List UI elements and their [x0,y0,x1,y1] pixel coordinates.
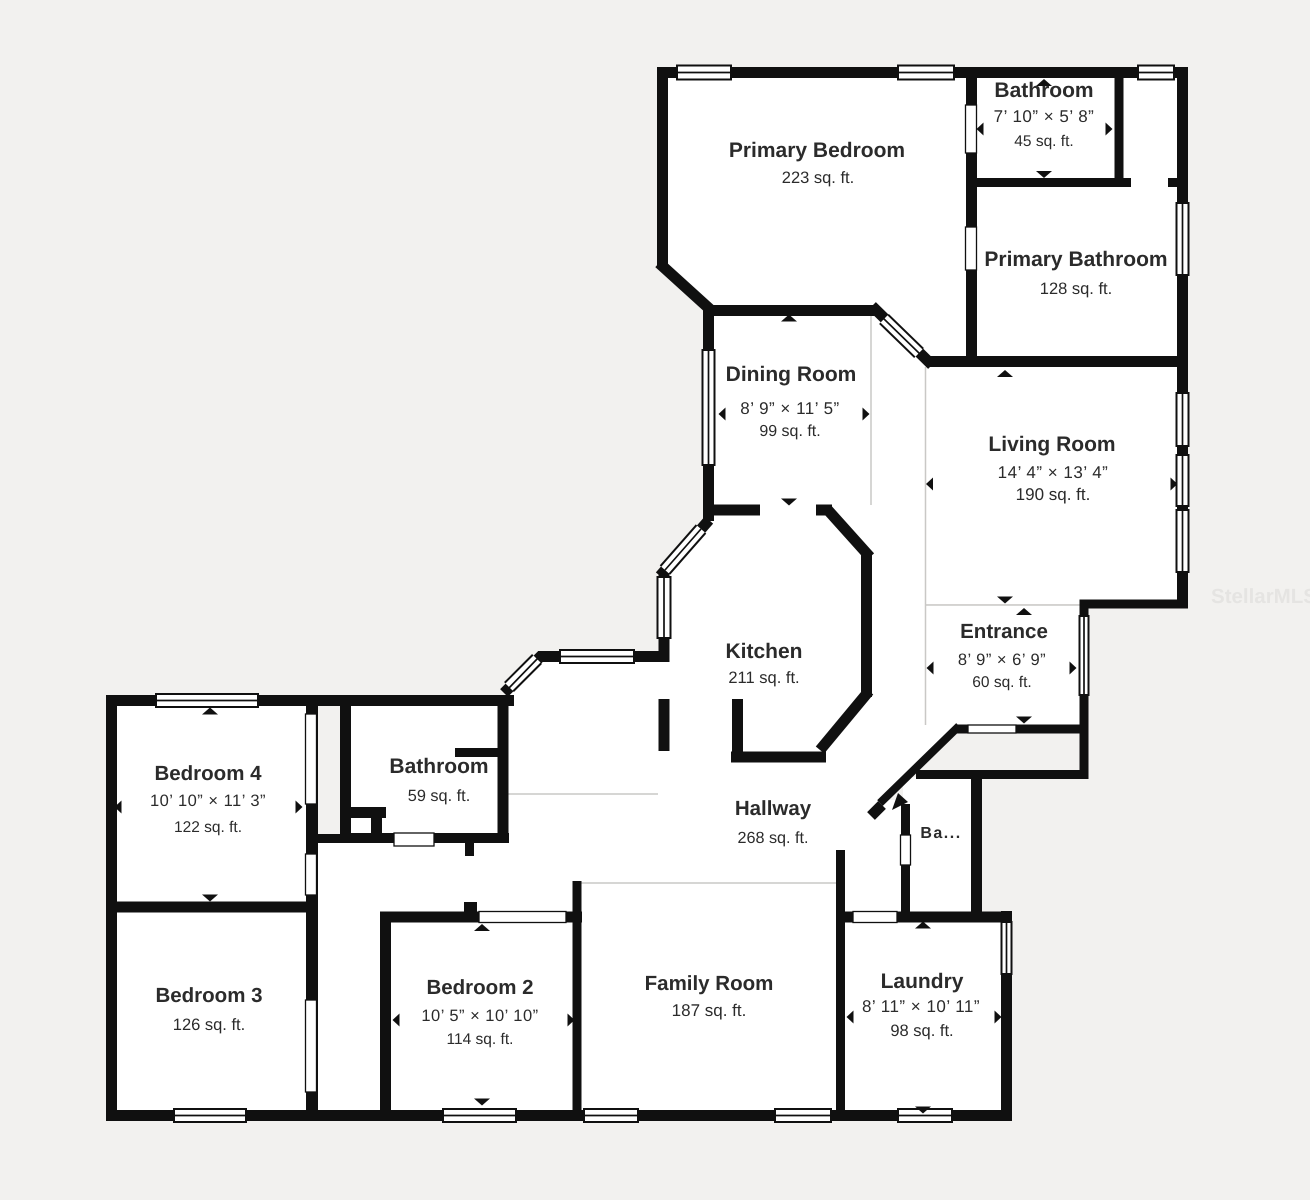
svg-text:99 sq. ft.: 99 sq. ft. [759,423,820,440]
svg-text:Bedroom 3: Bedroom 3 [155,984,262,1007]
svg-text:8’ 11” × 10’ 11”: 8’ 11” × 10’ 11” [862,997,980,1016]
svg-text:Living Room: Living Room [988,433,1115,456]
svg-text:Entrance: Entrance [960,620,1048,643]
svg-text:Family Room: Family Room [645,972,774,995]
svg-text:211 sq. ft.: 211 sq. ft. [728,669,799,687]
svg-text:98 sq. ft.: 98 sq. ft. [890,1022,953,1040]
svg-text:60 sq. ft.: 60 sq. ft. [972,674,1031,691]
svg-text:7’ 10” × 5’ 8”: 7’ 10” × 5’ 8” [994,107,1095,126]
svg-text:Kitchen: Kitchen [725,640,802,663]
svg-text:223 sq. ft.: 223 sq. ft. [782,169,854,187]
svg-text:45 sq. ft.: 45 sq. ft. [1014,133,1073,150]
svg-text:190 sq. ft.: 190 sq. ft. [1016,485,1091,504]
svg-text:StellarMLS: StellarMLS [1211,585,1310,608]
svg-text:Dining Room: Dining Room [726,363,857,386]
svg-text:Bedroom 4: Bedroom 4 [154,762,262,785]
svg-text:Primary Bathroom: Primary Bathroom [984,248,1167,271]
svg-text:187 sq. ft.: 187 sq. ft. [672,1001,747,1020]
svg-text:14’ 4” × 13’ 4”: 14’ 4” × 13’ 4” [998,463,1109,482]
svg-text:122 sq. ft.: 122 sq. ft. [174,819,242,836]
svg-text:Laundry: Laundry [881,970,964,993]
svg-text:126 sq. ft.: 126 sq. ft. [173,1016,245,1034]
svg-text:268 sq. ft.: 268 sq. ft. [737,829,808,847]
svg-text:8’ 9” × 6’ 9”: 8’ 9” × 6’ 9” [958,651,1046,669]
svg-text:8’ 9” × 11’ 5”: 8’ 9” × 11’ 5” [740,399,839,418]
svg-text:59 sq. ft.: 59 sq. ft. [408,787,470,805]
svg-text:Bedroom 2: Bedroom 2 [426,976,533,999]
svg-text:114 sq. ft.: 114 sq. ft. [447,1031,514,1048]
svg-text:Bathroom: Bathroom [994,79,1093,102]
svg-text:Primary Bedroom: Primary Bedroom [729,139,905,162]
svg-text:Ba...: Ba... [920,825,961,842]
svg-text:10’ 5” × 10’ 10”: 10’ 5” × 10’ 10” [421,1007,538,1025]
svg-text:Hallway: Hallway [735,797,812,820]
svg-text:10’ 10” × 11’ 3”: 10’ 10” × 11’ 3” [150,792,266,810]
svg-text:Bathroom: Bathroom [389,755,488,778]
svg-text:128 sq. ft.: 128 sq. ft. [1040,280,1112,298]
